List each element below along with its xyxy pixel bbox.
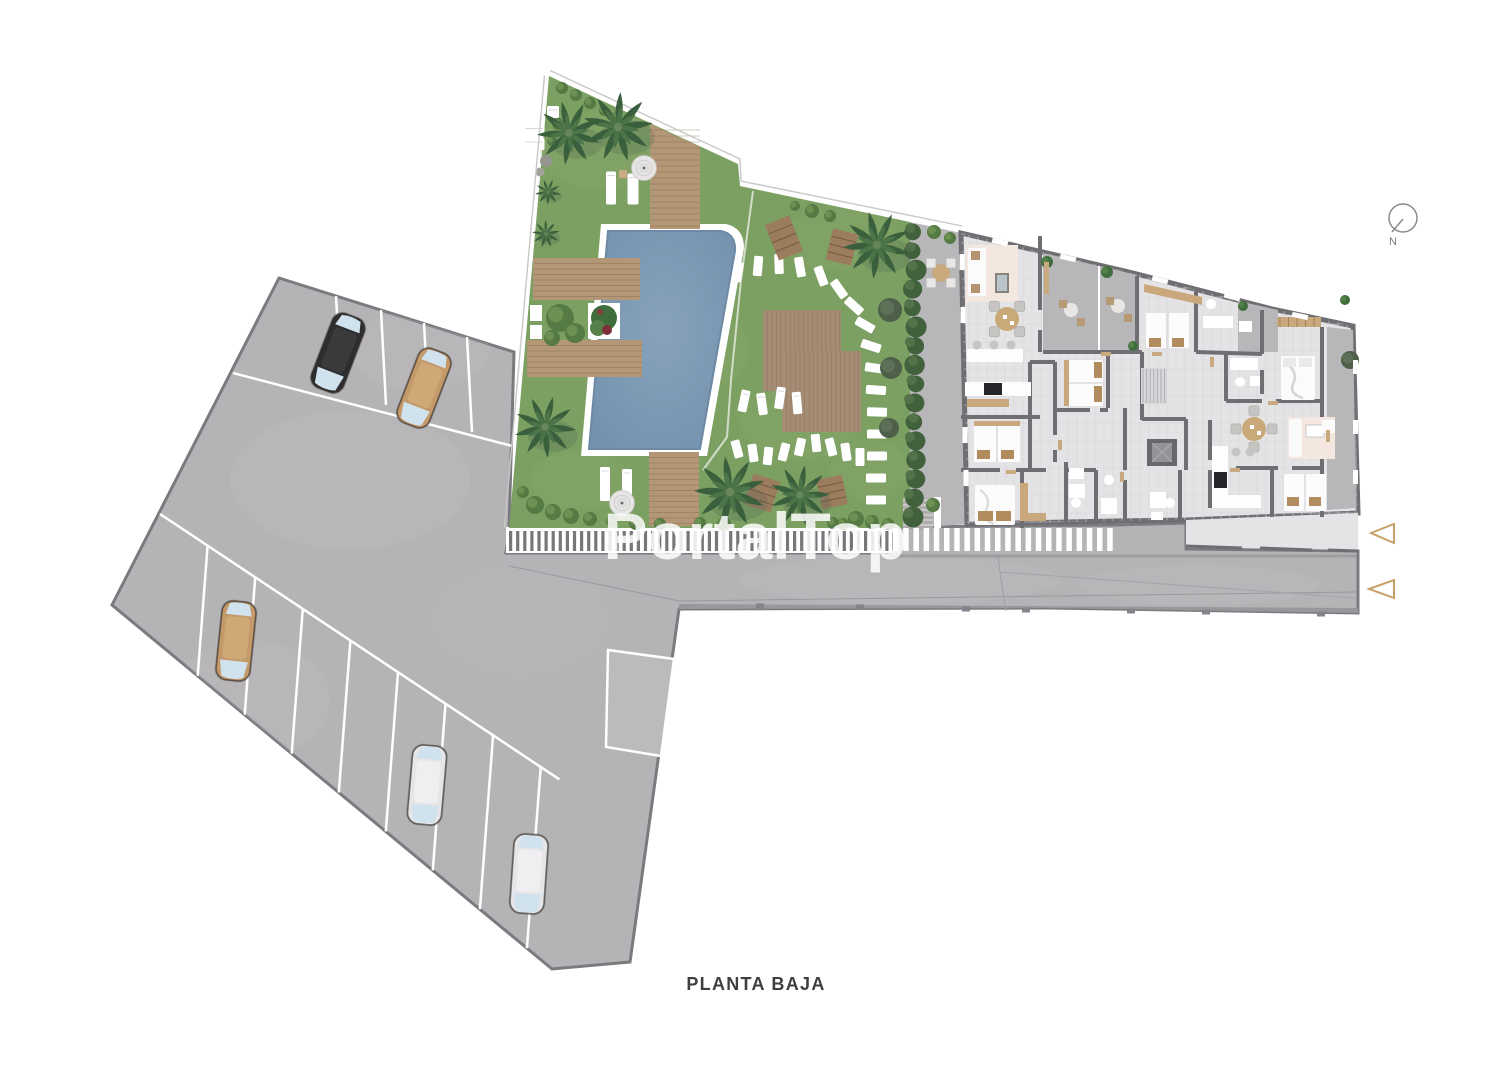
svg-text:N: N	[1389, 236, 1397, 248]
svg-text:PortalTop: PortalTop	[603, 499, 906, 573]
svg-text:PLANTA BAJA: PLANTA BAJA	[686, 974, 825, 994]
